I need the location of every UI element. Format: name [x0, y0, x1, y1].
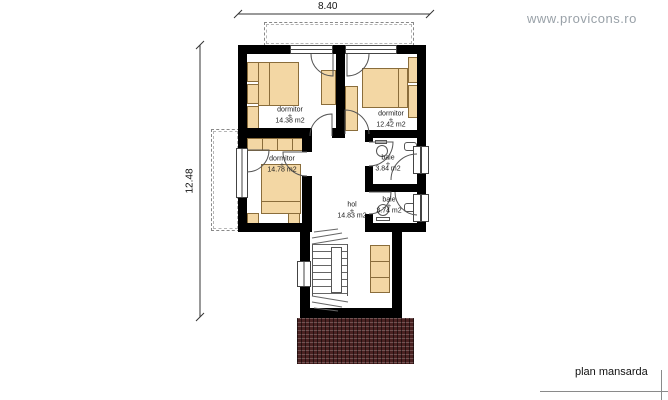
wall-hall-bedroom3-upper	[302, 128, 312, 152]
stair-rail	[331, 247, 342, 293]
wardrobe	[345, 86, 358, 131]
titleblock-line-horizontal	[540, 391, 668, 392]
room-label-baie-2: baie + 3.74 m2	[376, 197, 401, 216]
room-area: 3.84 m2	[375, 166, 400, 173]
bed	[258, 62, 299, 106]
room-area: 14.38 m2	[275, 118, 304, 125]
room-area: 14.83 m2	[337, 213, 366, 220]
wall-stairhall-bottom	[300, 308, 402, 318]
door-arc	[310, 114, 332, 136]
wall-hall-bath-2	[365, 166, 373, 192]
room-label-hol: hol + 14.83 m2	[337, 202, 366, 221]
dormer-outline	[264, 22, 414, 46]
wall-hall-bedroom3-lower	[302, 176, 312, 223]
window-bath1	[413, 146, 429, 174]
staircase	[312, 244, 348, 296]
dimension-height-label: 12.48	[185, 168, 196, 193]
room-label-dormitor-2: dormitor + 12.42 m2	[376, 111, 405, 130]
window-dormer-right	[345, 45, 397, 54]
wall-hall-bath-1	[365, 130, 373, 142]
wall-between-baths	[373, 184, 417, 192]
toilet	[376, 217, 390, 221]
wall-center-bedrooms	[336, 45, 345, 133]
room-area: 14.78 m2	[267, 167, 296, 174]
window-balcony	[236, 148, 248, 198]
window-stairhall	[297, 261, 311, 287]
wall-bath1-top	[370, 130, 417, 138]
wall-bottom-bath	[365, 223, 426, 232]
titleblock-line-vertical	[661, 370, 662, 400]
roof-hatch	[297, 318, 414, 364]
window-dormer-left	[290, 45, 333, 54]
room-label-baie-1: baie + 3.84 m2	[375, 155, 400, 174]
wall-bedroom1-bottom	[238, 128, 302, 138]
room-area: 12.42 m2	[376, 122, 405, 129]
plan-title: plan mansarda	[575, 366, 648, 378]
window-bath2	[413, 194, 429, 222]
bed	[362, 68, 408, 108]
watermark: www.provicons.ro	[527, 11, 637, 26]
wall-hall-top-stub	[332, 128, 345, 138]
sofa	[370, 245, 390, 293]
wardrobe	[247, 138, 308, 151]
room-label-dormitor-1: dormitor + 14.38 m2	[275, 107, 304, 126]
room-label-dormitor-3: dormitor + 14.78 m2	[267, 156, 296, 175]
wall-stairhall-right	[392, 232, 402, 318]
dimension-width-label: 8.40	[318, 1, 337, 12]
floorplan-canvas: www.provicons.ro plan mansarda 8.40 12.4…	[0, 0, 668, 400]
wardrobe	[321, 70, 336, 105]
wall-left	[238, 45, 247, 232]
room-area: 3.74 m2	[376, 208, 401, 215]
toilet	[375, 140, 387, 144]
